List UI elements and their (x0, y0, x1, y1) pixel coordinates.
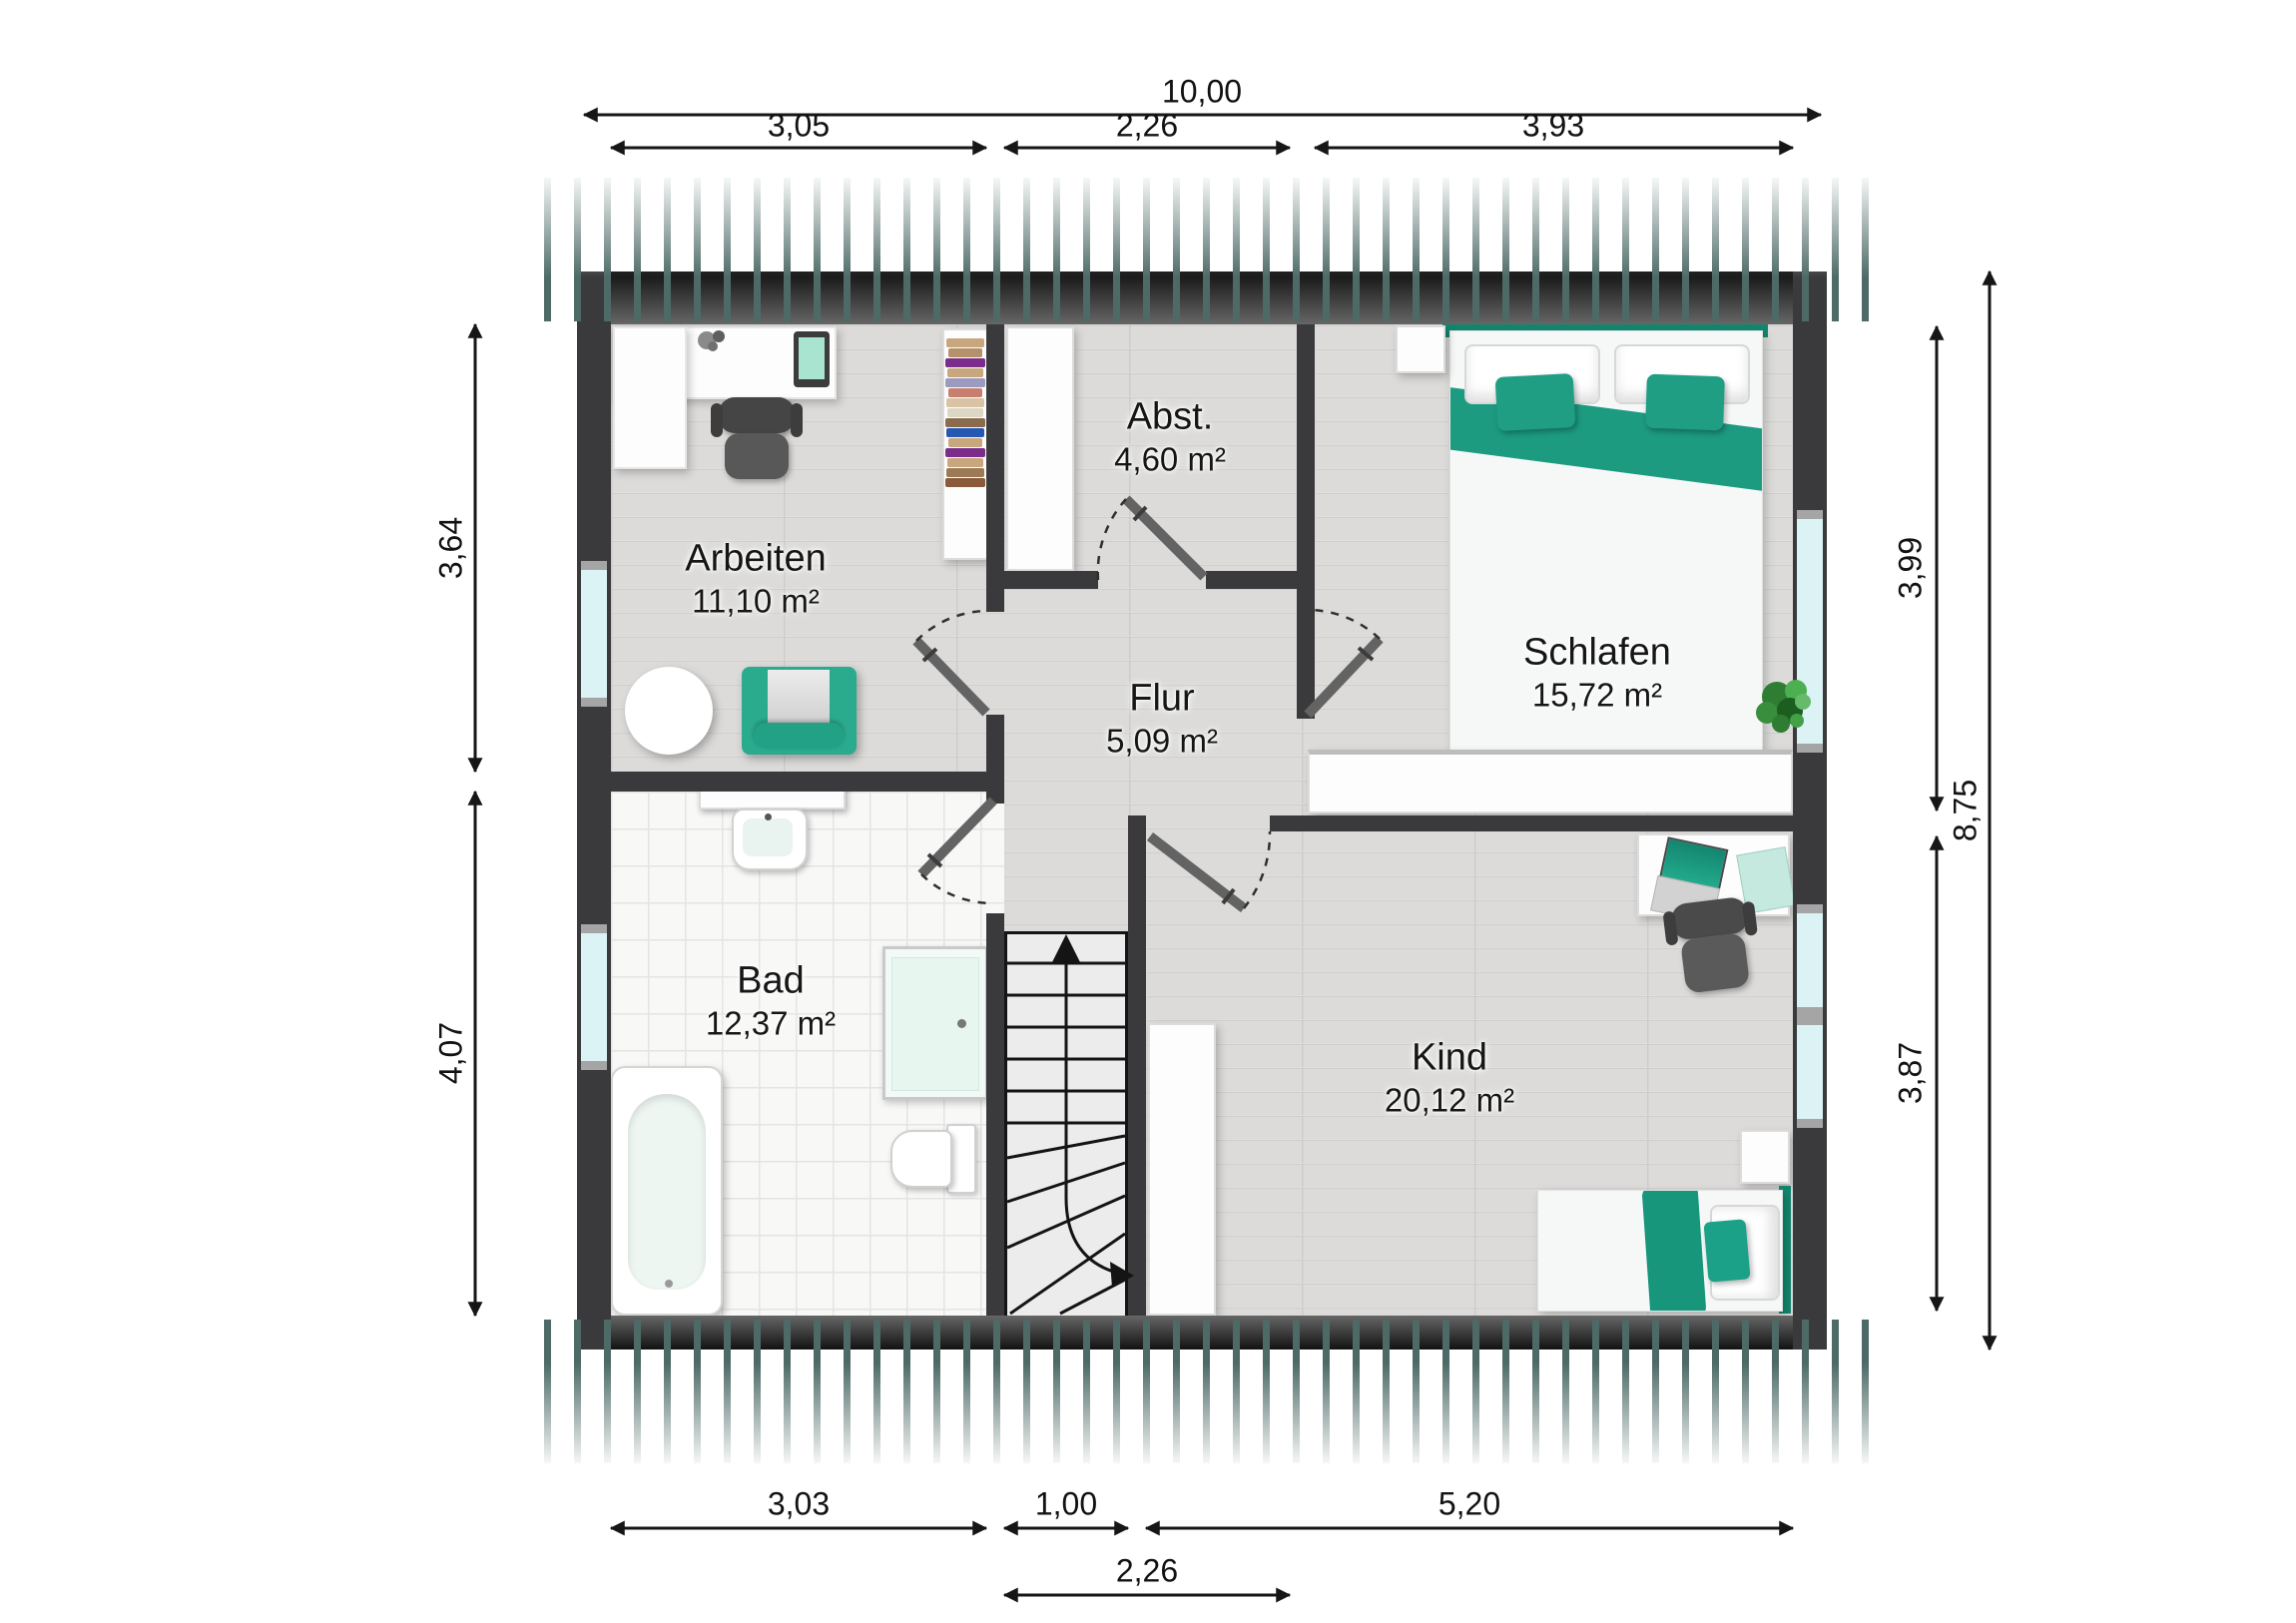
window (1797, 510, 1823, 753)
window (1797, 1016, 1823, 1128)
dim-label-bottom-seg3: 5,20 (1438, 1486, 1500, 1523)
office-chair-armrest (791, 403, 803, 437)
wall (1297, 324, 1315, 719)
room-label-abstellraum: Abst. 4,60 m² (1114, 396, 1226, 479)
office-chair-seat (725, 433, 789, 479)
armchair-back-cushion (768, 670, 830, 726)
floor-plan: 10,00 3,05 2,26 3,93 3,03 1,00 5,20 2,26… (0, 0, 2296, 1623)
desk-return (613, 326, 687, 469)
dim-label-bottom-seg2: 1,00 (1035, 1486, 1097, 1523)
dim-label-top-seg1: 3,05 (768, 108, 830, 145)
room-area: 4,60 m² (1114, 441, 1226, 479)
cushion (1495, 373, 1576, 431)
nightstand (1396, 325, 1445, 373)
dim-label-right-seg1: 3,99 (1893, 537, 1930, 599)
staircase (1004, 931, 1128, 1316)
toilet (890, 1130, 952, 1188)
dim-label-right-total: 8,75 (1948, 780, 1985, 841)
bookshelf (942, 328, 988, 560)
dim-label-left-seg1: 3,64 (433, 517, 470, 579)
dim-label-right-seg2: 3,87 (1893, 1042, 1930, 1104)
wall (1270, 815, 1793, 831)
room-name: Flur (1106, 678, 1218, 721)
window (581, 561, 607, 707)
wall (986, 715, 1004, 792)
wall (986, 324, 1004, 612)
shower (882, 946, 988, 1100)
duvet-band (1641, 1190, 1706, 1312)
room-area: 15,72 m² (1523, 677, 1671, 715)
wall (1206, 571, 1315, 589)
room-label-kind: Kind 20,12 m² (1385, 1037, 1514, 1120)
wardrobe (1308, 750, 1793, 813)
monitor-screen (799, 337, 825, 379)
dim-label-top-seg3: 3,93 (1522, 108, 1584, 145)
room-label-schlafen: Schlafen 15,72 m² (1523, 632, 1671, 715)
armchair-seat (754, 723, 844, 749)
room-name: Bad (706, 960, 836, 1003)
exterior-wall-left (577, 271, 611, 1350)
roof-overhang-top (544, 178, 1875, 321)
cushion (1703, 1219, 1750, 1282)
room-name: Abst. (1114, 396, 1226, 439)
chair-seat (1680, 932, 1750, 993)
wall (986, 790, 1004, 804)
room-label-bad: Bad 12,37 m² (706, 960, 836, 1043)
cushion (1645, 374, 1725, 431)
room-label-arbeiten: Arbeiten 11,10 m² (685, 538, 827, 621)
room-area: 20,12 m² (1385, 1082, 1514, 1120)
wall (986, 913, 1004, 1316)
office-chair-armrest (711, 403, 723, 437)
wall (1128, 815, 1146, 1316)
sink (732, 809, 808, 870)
book-stack-icon (944, 338, 986, 367)
room-name: Schlafen (1523, 632, 1671, 675)
sink-drain (765, 813, 772, 820)
roof-overhang-bottom (544, 1320, 1875, 1463)
sink-basin (743, 818, 793, 856)
room-label-flur: Flur 5,09 m² (1106, 678, 1218, 761)
nightstand (1740, 1130, 1790, 1184)
bathtub-drain (665, 1280, 673, 1288)
wardrobe (1148, 1023, 1216, 1316)
dim-label-bottom-sub: 2,26 (1116, 1553, 1178, 1590)
window (1797, 904, 1823, 1016)
bathtub-basin (628, 1094, 706, 1290)
dim-label-top-seg2: 2,26 (1116, 108, 1178, 145)
dim-label-left-seg2: 4,07 (433, 1022, 470, 1084)
storage-cabinet (1006, 326, 1074, 571)
chair-back (1670, 896, 1750, 941)
book-stack-icon (944, 448, 986, 487)
book-stack-icon (944, 408, 986, 447)
side-table (625, 667, 713, 755)
dim-label-bottom-seg1: 3,03 (768, 1486, 830, 1523)
armchair (742, 667, 857, 755)
exterior-wall-right (1793, 271, 1827, 1350)
window (581, 924, 607, 1070)
single-bed (1537, 1190, 1783, 1312)
kids-office-chair (1661, 893, 1764, 999)
bathtub (611, 1066, 723, 1316)
dim-label-top-total: 10,00 (1162, 74, 1242, 111)
wall (611, 772, 988, 792)
room-area: 5,09 m² (1106, 723, 1218, 761)
room-area: 12,37 m² (706, 1005, 836, 1043)
room-area: 11,10 m² (685, 583, 827, 621)
wall (986, 571, 1098, 589)
office-chair-back (719, 397, 795, 433)
shower-drain (957, 1019, 966, 1028)
room-name: Kind (1385, 1037, 1514, 1080)
monitor-icon (794, 331, 830, 387)
room-name: Arbeiten (685, 538, 827, 581)
book-stack-icon (944, 368, 986, 407)
